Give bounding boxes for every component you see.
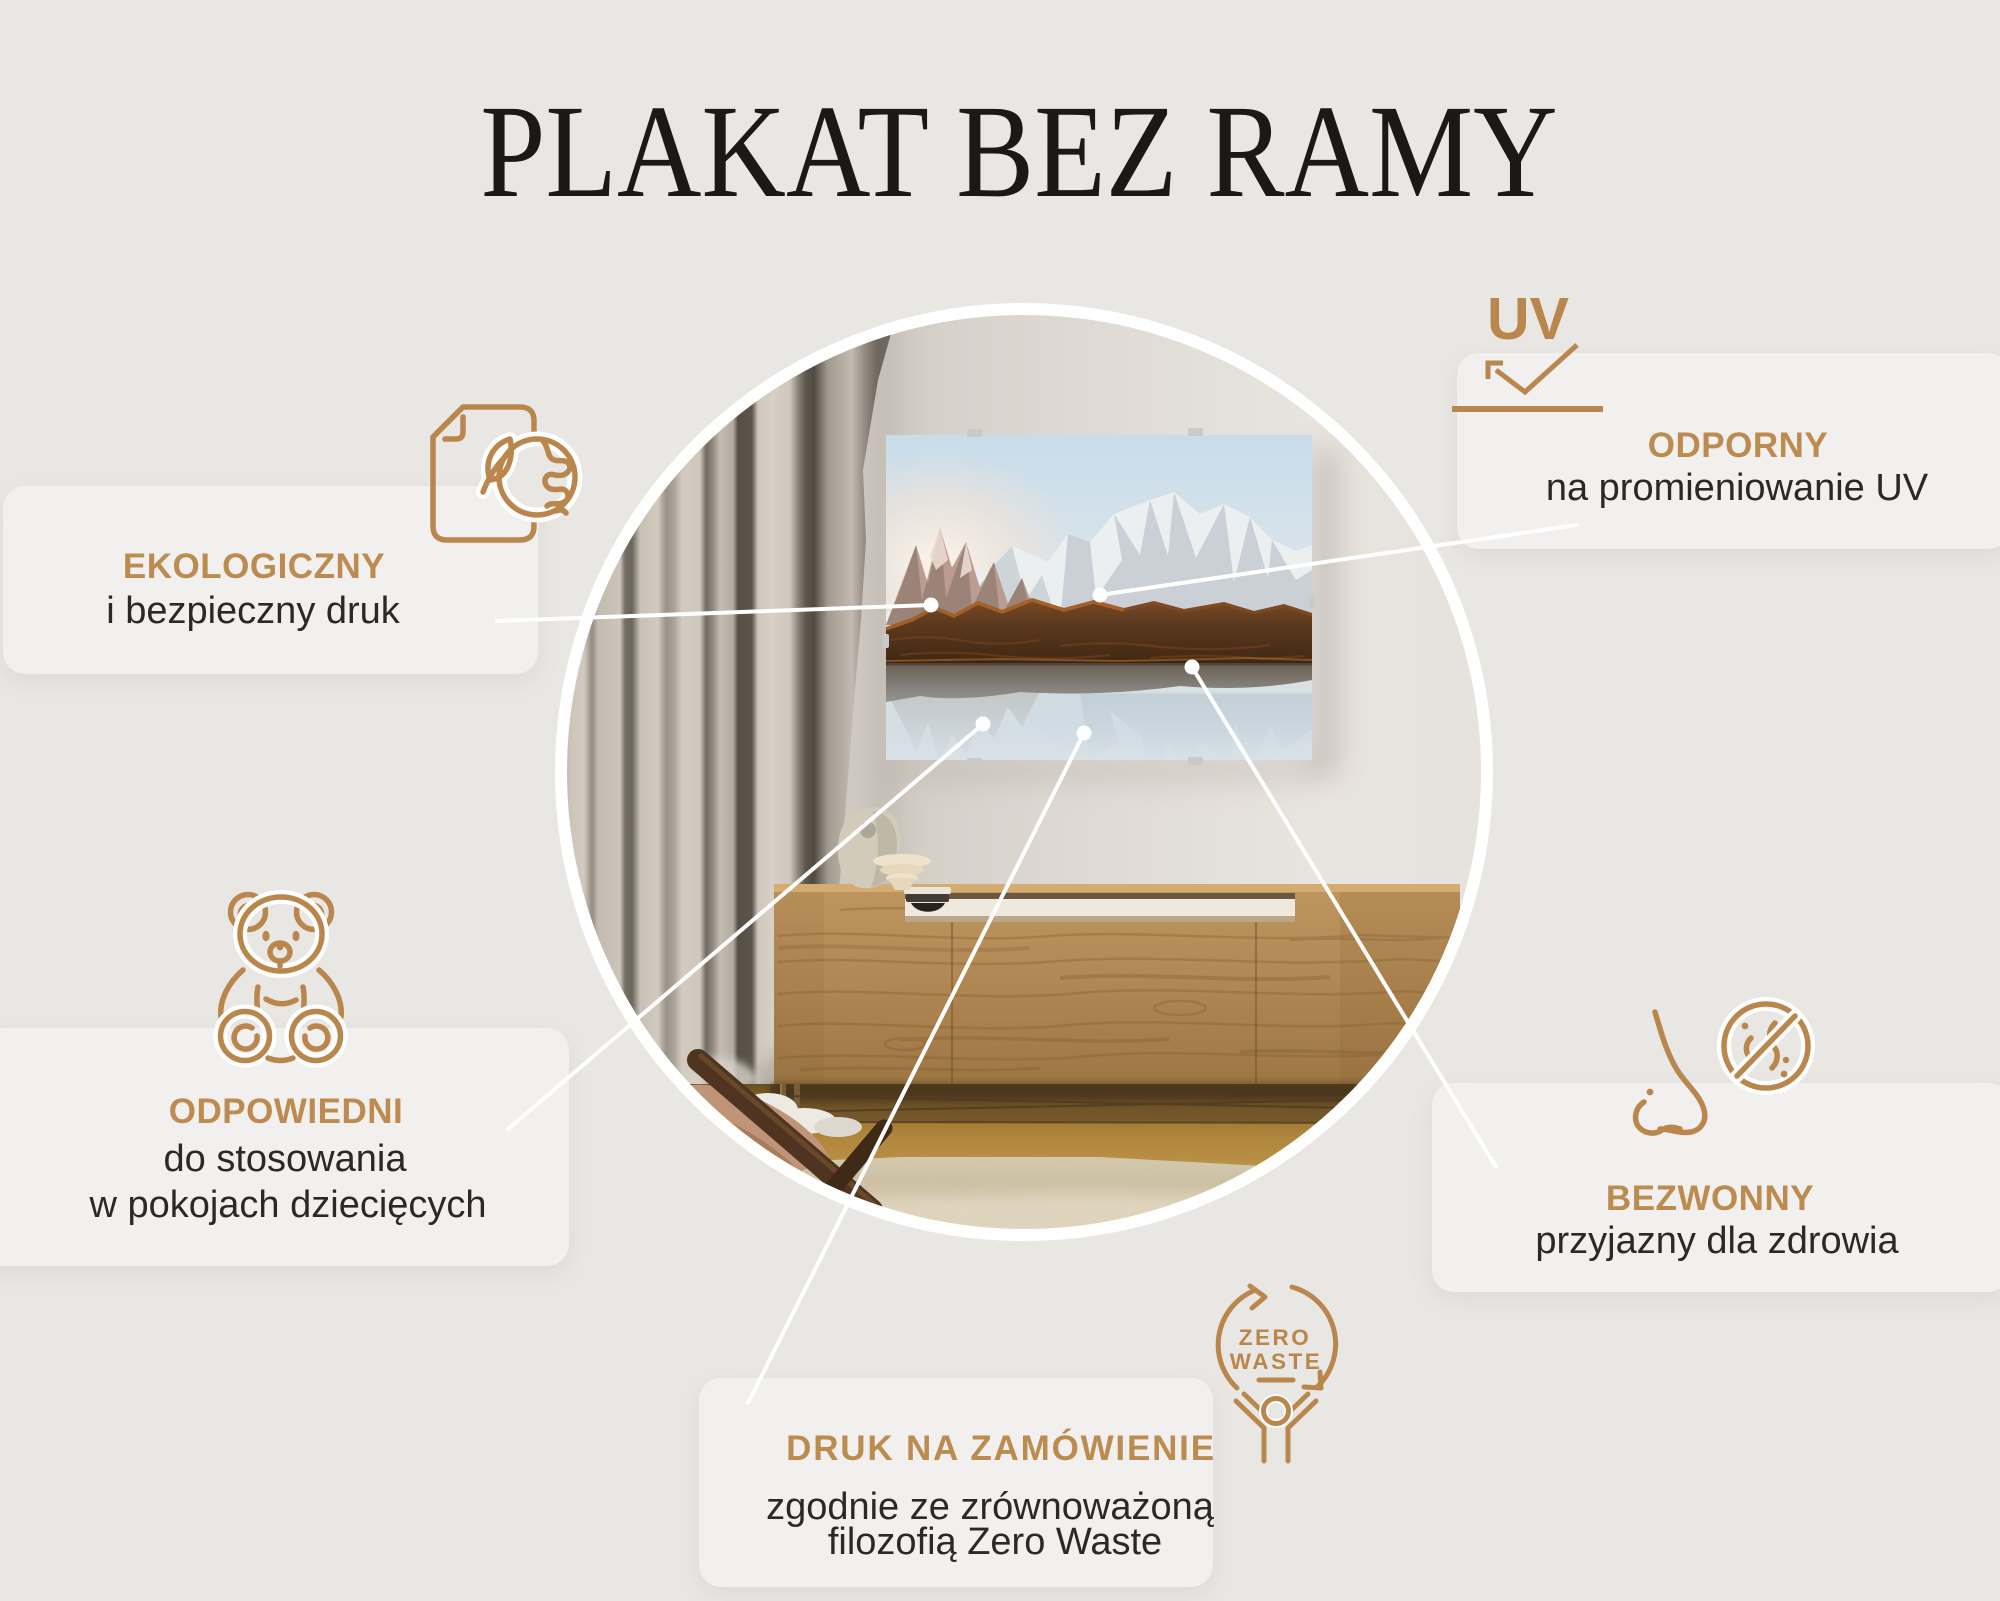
svg-text:WASTE: WASTE <box>1230 1349 1323 1374</box>
svg-text:UV: UV <box>1487 286 1569 352</box>
svg-text:ZERO: ZERO <box>1239 1325 1312 1350</box>
